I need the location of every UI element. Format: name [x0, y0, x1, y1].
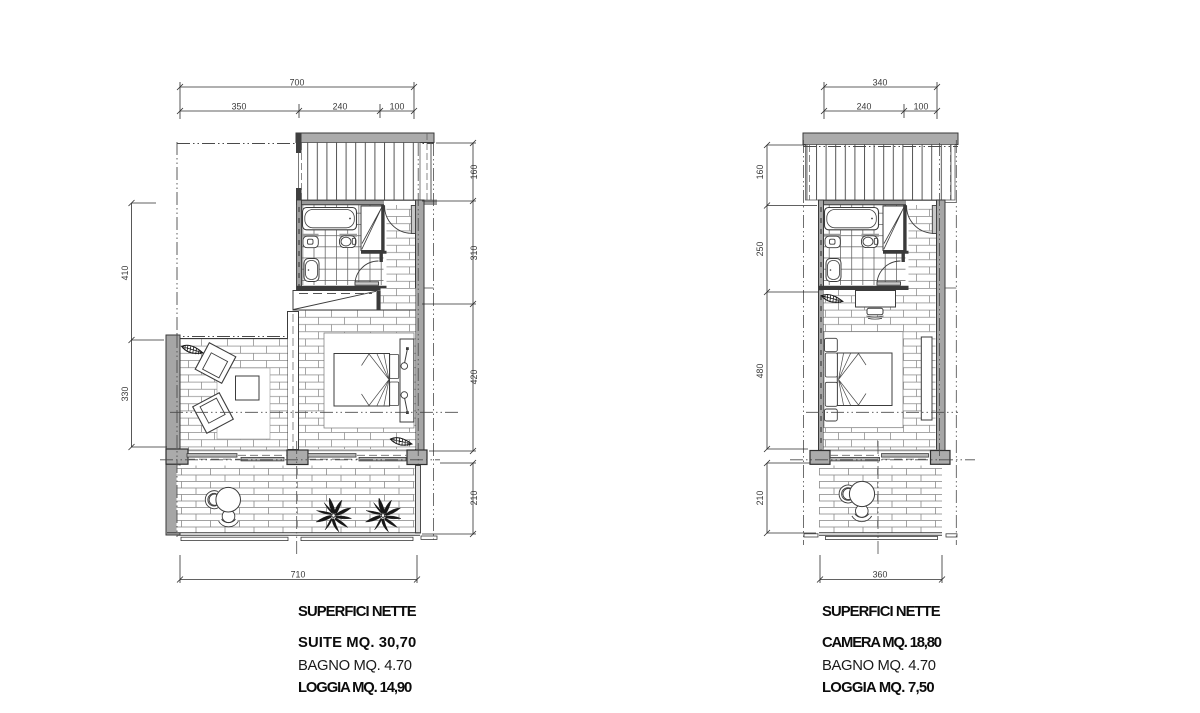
svg-text:710: 710	[291, 570, 306, 580]
svg-text:350: 350	[232, 102, 247, 112]
svg-text:SUPERFICI NETTE: SUPERFICI NETTE	[822, 604, 941, 620]
svg-text:240: 240	[333, 102, 348, 112]
svg-text:100: 100	[914, 102, 929, 112]
svg-text:480: 480	[755, 364, 765, 379]
svg-text:700: 700	[290, 78, 305, 88]
svg-text:BAGNO MQ. 4.70: BAGNO MQ. 4.70	[298, 658, 412, 674]
svg-text:210: 210	[755, 491, 765, 506]
svg-text:100: 100	[390, 102, 405, 112]
svg-text:SUITE MQ. 30,70: SUITE MQ. 30,70	[298, 635, 416, 651]
svg-text:250: 250	[755, 242, 765, 257]
svg-text:210: 210	[469, 491, 479, 506]
svg-text:LOGGIA MQ. 14,90: LOGGIA MQ. 14,90	[298, 680, 412, 696]
svg-text:LOGGIA MQ. 7,50: LOGGIA MQ. 7,50	[822, 680, 934, 696]
svg-text:BAGNO MQ. 4.70: BAGNO MQ. 4.70	[822, 658, 936, 674]
svg-text:310: 310	[469, 246, 479, 261]
svg-text:CAMERA MQ. 18,80: CAMERA MQ. 18,80	[822, 635, 942, 651]
svg-text:240: 240	[857, 102, 872, 112]
svg-text:SUPERFICI NETTE: SUPERFICI NETTE	[298, 604, 417, 620]
svg-text:330: 330	[120, 387, 130, 402]
svg-text:360: 360	[873, 570, 888, 580]
svg-text:420: 420	[469, 370, 479, 385]
svg-text:340: 340	[873, 78, 888, 88]
svg-text:160: 160	[755, 165, 765, 180]
svg-text:160: 160	[469, 165, 479, 180]
svg-text:410: 410	[120, 266, 130, 281]
